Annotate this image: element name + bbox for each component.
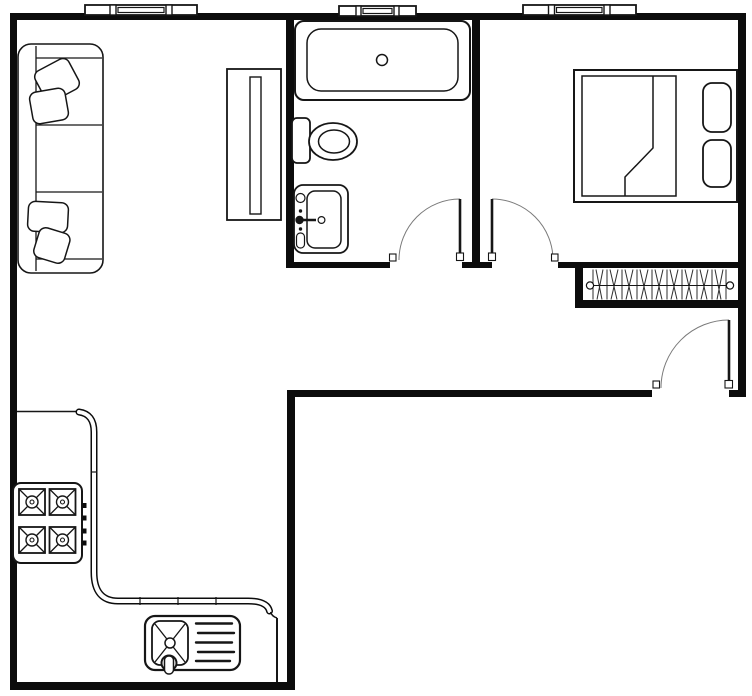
sink-drain — [165, 638, 175, 648]
media-cabinet — [227, 69, 281, 220]
floor-plan-page — [0, 0, 752, 696]
bathroom — [292, 21, 470, 253]
wall-kitchen-bottom — [10, 682, 295, 690]
bedroom-door — [489, 199, 559, 261]
closet-rod-end — [726, 282, 733, 289]
windows — [85, 5, 636, 16]
bed-pillow-2 — [703, 140, 731, 187]
bed-pillow-1 — [703, 83, 731, 132]
bedroom-window — [523, 5, 636, 15]
kitchen — [13, 412, 277, 683]
sink-faucet — [162, 656, 177, 675]
wall-bathroom-bedroom — [472, 20, 480, 268]
stove-knob — [83, 503, 87, 508]
stove — [13, 483, 87, 563]
wall-hall-bottom-right-stub — [729, 390, 746, 397]
bathtub — [295, 21, 470, 100]
closet-hanger-hatching — [593, 270, 726, 300]
stove-knob — [83, 541, 87, 546]
wall-kitchen-right — [287, 390, 295, 690]
door-swing-arc — [399, 199, 460, 260]
vanity-sink — [294, 185, 348, 253]
wall-closet-bottom — [575, 300, 746, 308]
handle-dot — [299, 227, 302, 230]
wall-hall-bottom-left — [287, 390, 652, 397]
stove-knob — [83, 516, 87, 521]
doors — [390, 199, 733, 388]
door-swing-arc — [492, 199, 553, 260]
toilet-tank — [292, 118, 310, 163]
throw-pillow-2 — [28, 87, 69, 125]
closet — [586, 270, 733, 300]
living-room — [18, 44, 281, 273]
wall-right — [738, 13, 746, 397]
living-room-window — [85, 5, 197, 15]
wall-left — [10, 13, 17, 690]
door-swing-arc — [661, 320, 729, 388]
wall-hall-top-stub — [462, 262, 492, 268]
bathroom-window — [339, 6, 416, 16]
bedroom — [574, 70, 737, 202]
double-bed — [574, 70, 737, 202]
entry-door — [653, 320, 733, 388]
wall-hall-top-b — [558, 262, 746, 268]
closet-rod-end — [586, 282, 593, 289]
toilet — [292, 118, 357, 163]
sofa — [18, 44, 103, 273]
bathroom-door — [390, 199, 464, 261]
floor-plan-drawing — [0, 0, 752, 696]
handle-dot — [299, 209, 302, 212]
kitchen-sink — [145, 616, 240, 674]
wall-hall-top-a — [286, 262, 390, 268]
stove-knob — [83, 529, 87, 534]
